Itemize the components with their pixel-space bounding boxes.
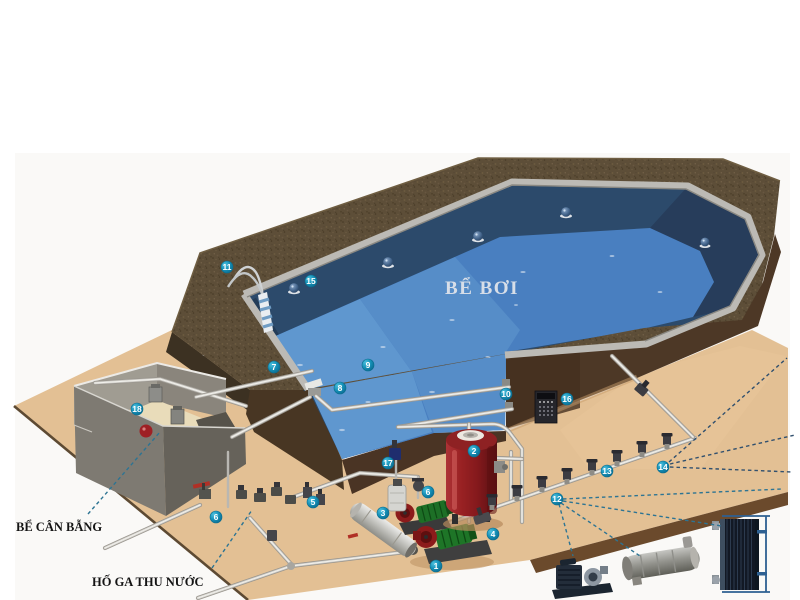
svg-text:15: 15 — [306, 276, 316, 286]
svg-text:18: 18 — [132, 404, 142, 414]
svg-text:7: 7 — [272, 362, 277, 372]
svg-text:16: 16 — [562, 394, 572, 404]
svg-text:13: 13 — [602, 466, 612, 476]
svg-text:6: 6 — [426, 487, 431, 497]
svg-text:1: 1 — [434, 561, 439, 571]
svg-text:9: 9 — [366, 360, 371, 370]
svg-text:11: 11 — [223, 262, 232, 272]
svg-text:6: 6 — [214, 512, 219, 522]
svg-text:HỐ GA THU NƯỚC: HỐ GA THU NƯỚC — [92, 574, 203, 589]
svg-text:17: 17 — [383, 458, 393, 468]
svg-text:3: 3 — [381, 508, 386, 518]
svg-text:14: 14 — [658, 462, 668, 472]
svg-text:2: 2 — [472, 446, 477, 456]
svg-text:BỂ BƠI: BỂ BƠI — [445, 277, 519, 299]
svg-text:10: 10 — [501, 389, 511, 399]
svg-text:8: 8 — [338, 383, 343, 393]
svg-text:5: 5 — [311, 497, 316, 507]
svg-text:12: 12 — [552, 494, 562, 504]
svg-text:4: 4 — [491, 529, 496, 539]
svg-text:BỂ CÂN BẪNG: BỂ CÂN BẪNG — [16, 519, 102, 534]
